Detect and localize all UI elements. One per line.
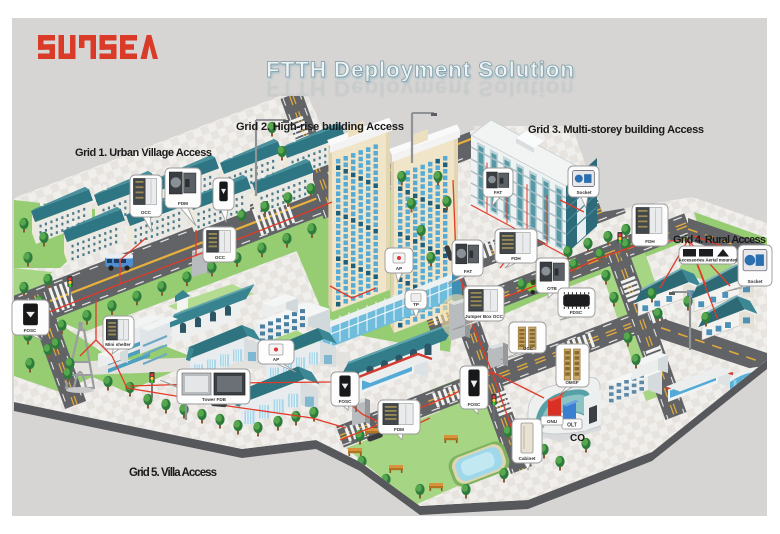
svg-text:FTTH Deployment Solution: FTTH Deployment Solution bbox=[266, 76, 574, 101]
svg-text:Cabinet: Cabinet bbox=[519, 456, 536, 461]
svg-text:FOSC: FOSC bbox=[339, 399, 352, 404]
svg-text:OCC: OCC bbox=[141, 210, 152, 215]
svg-text:CO: CO bbox=[570, 433, 585, 444]
svg-text:FDM: FDM bbox=[178, 201, 188, 206]
svg-text:OTB: OTB bbox=[547, 286, 557, 291]
svg-text:Grid 3. Multi-storey building: Grid 3. Multi-storey building Access bbox=[528, 124, 704, 136]
svg-text:FAT: FAT bbox=[494, 190, 503, 195]
svg-text:FDH: FDH bbox=[645, 239, 655, 244]
svg-text:TP: TP bbox=[413, 302, 419, 307]
svg-text:FDH: FDH bbox=[511, 256, 521, 261]
svg-text:Grid 5. Villa Access: Grid 5. Villa Access bbox=[129, 467, 217, 479]
svg-text:OLT: OLT bbox=[567, 423, 577, 429]
svg-text:OMSF: OMSF bbox=[565, 380, 578, 385]
svg-text:Mini shelter: Mini shelter bbox=[105, 342, 131, 347]
svg-text:Jumper Box OCC: Jumper Box OCC bbox=[465, 314, 504, 319]
svg-text:ONU: ONU bbox=[547, 419, 558, 424]
svg-text:FAT: FAT bbox=[464, 269, 473, 274]
svg-text:FDM: FDM bbox=[394, 427, 404, 432]
svg-text:AP: AP bbox=[396, 266, 402, 271]
svg-text:OCC: OCC bbox=[523, 346, 534, 351]
svg-text:Tower FDB: Tower FDB bbox=[202, 397, 227, 402]
svg-text:Grid 1. Urban Village Access: Grid 1. Urban Village Access bbox=[75, 147, 212, 159]
svg-text:OCC: OCC bbox=[215, 255, 226, 260]
svg-text:Socket: Socket bbox=[747, 279, 763, 284]
svg-text:Accessories Aerial mounted: Accessories Aerial mounted bbox=[679, 258, 738, 263]
svg-text:FDSC: FDSC bbox=[570, 310, 583, 315]
svg-text:FOSC: FOSC bbox=[468, 402, 481, 407]
svg-text:Grid 2. High-rise building Acc: Grid 2. High-rise building Access bbox=[236, 121, 404, 133]
svg-text:FOSC: FOSC bbox=[24, 328, 37, 333]
svg-text:AP: AP bbox=[273, 357, 279, 362]
svg-text:Grid 4. Rural Access: Grid 4. Rural Access bbox=[673, 234, 766, 246]
svg-text:Socket: Socket bbox=[576, 190, 592, 195]
